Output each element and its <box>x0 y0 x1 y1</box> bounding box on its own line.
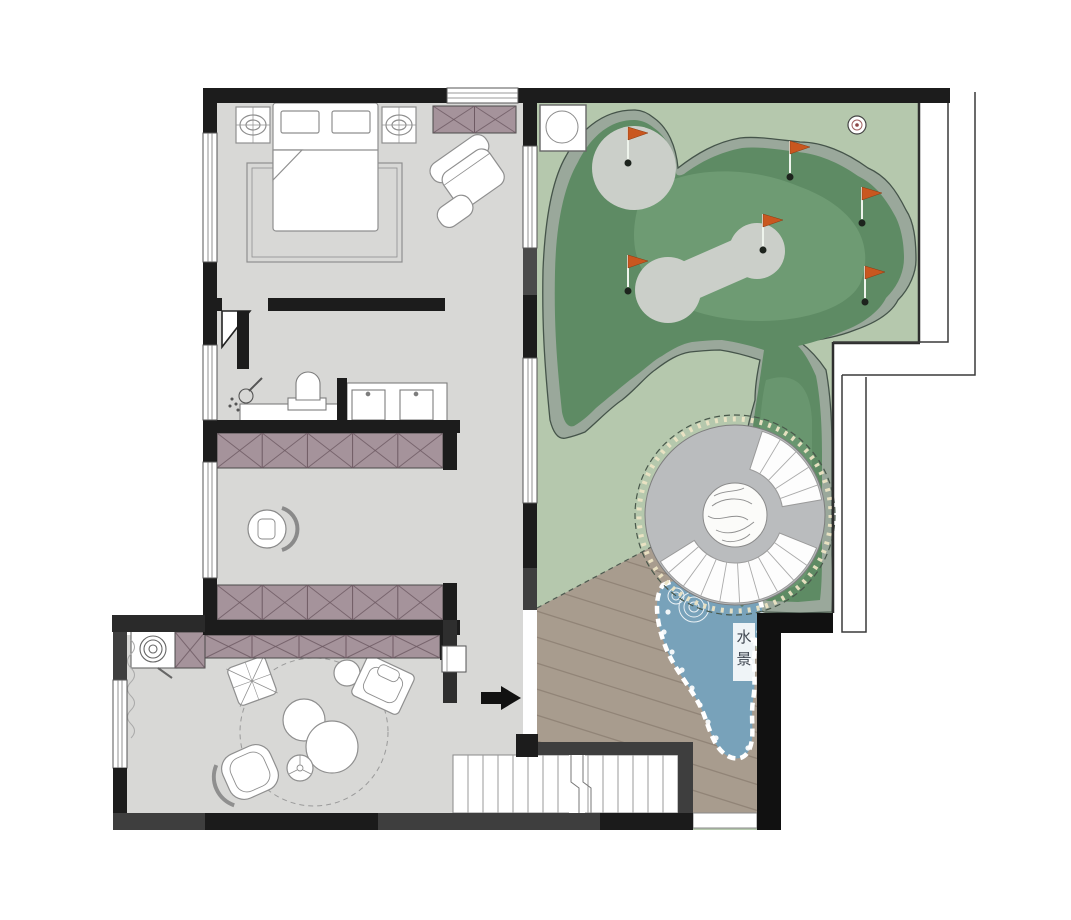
window-hall <box>523 146 537 248</box>
nightstand-right <box>382 107 416 143</box>
wall <box>203 88 950 103</box>
golf-hole <box>862 299 869 306</box>
deck-step <box>693 813 757 828</box>
wall <box>523 295 537 358</box>
wardrobe <box>175 632 205 668</box>
wall <box>203 88 217 133</box>
putting-green-lobe <box>635 257 701 323</box>
golf-hole <box>625 160 632 167</box>
wall <box>203 578 217 622</box>
sprinkler-icon <box>848 116 866 134</box>
window-hall <box>523 358 537 503</box>
wall <box>113 632 127 680</box>
wall-cap <box>443 583 457 624</box>
window-left <box>203 345 217 420</box>
stairs <box>453 754 678 814</box>
niche-box <box>442 646 466 672</box>
water-feature-label: 景 <box>736 651 751 668</box>
planter-box <box>540 105 586 151</box>
wardrobe <box>217 433 443 468</box>
wall <box>523 742 693 755</box>
water-feature-label: 水 <box>736 629 751 646</box>
window-left <box>203 462 217 578</box>
wall <box>113 813 205 830</box>
wall <box>217 420 460 433</box>
floor-plan-svg: 水 景 <box>0 0 1071 920</box>
wall <box>516 734 538 757</box>
putting-green-circle <box>592 126 676 210</box>
window-tea-left <box>113 680 127 768</box>
door-opening <box>222 298 268 311</box>
wall-cap <box>443 430 457 470</box>
tea-table-large <box>306 721 358 773</box>
golf-hole <box>760 247 767 254</box>
golf-hole <box>625 288 632 295</box>
putting-green-lobe <box>729 223 785 279</box>
side-table <box>287 755 313 781</box>
wall <box>203 262 217 345</box>
wall <box>600 813 693 830</box>
window-left <box>203 133 217 262</box>
wall <box>203 420 217 462</box>
golf-hole <box>859 220 866 227</box>
wall <box>523 91 537 146</box>
wall <box>203 620 460 635</box>
floor-plan-page: 水 景 <box>0 0 1071 920</box>
spiral-center-stone <box>703 483 767 547</box>
wall <box>523 503 537 568</box>
wall <box>112 615 205 632</box>
wall <box>378 813 600 830</box>
wall <box>523 568 537 610</box>
pillow <box>332 111 370 133</box>
pillow <box>281 111 319 133</box>
bed <box>273 103 378 231</box>
wall <box>523 248 537 295</box>
wall <box>757 613 781 830</box>
nightstand-left <box>236 107 270 143</box>
outline-lower-band <box>842 375 866 632</box>
wall <box>205 813 378 830</box>
wall <box>678 742 693 813</box>
wall <box>237 311 249 369</box>
wardrobe <box>205 635 440 658</box>
golf-hole <box>787 174 794 181</box>
stair-well <box>453 755 678 813</box>
wardrobe <box>433 106 516 133</box>
wardrobe <box>217 585 443 620</box>
window-top <box>447 88 518 103</box>
